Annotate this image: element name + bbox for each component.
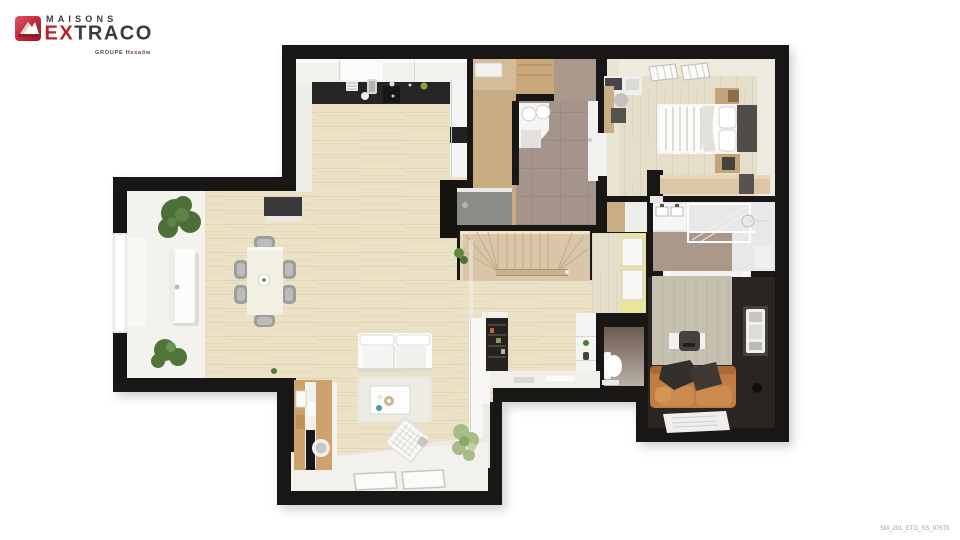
svg-text:SM_201_ETG_SS_97673: SM_201_ETG_SS_97673 (880, 526, 950, 532)
svg-text:GROUPE Hеxaōм: GROUPE Hеxaōм (95, 50, 151, 56)
svg-text:EXTRACO: EXTRACO (45, 23, 153, 45)
